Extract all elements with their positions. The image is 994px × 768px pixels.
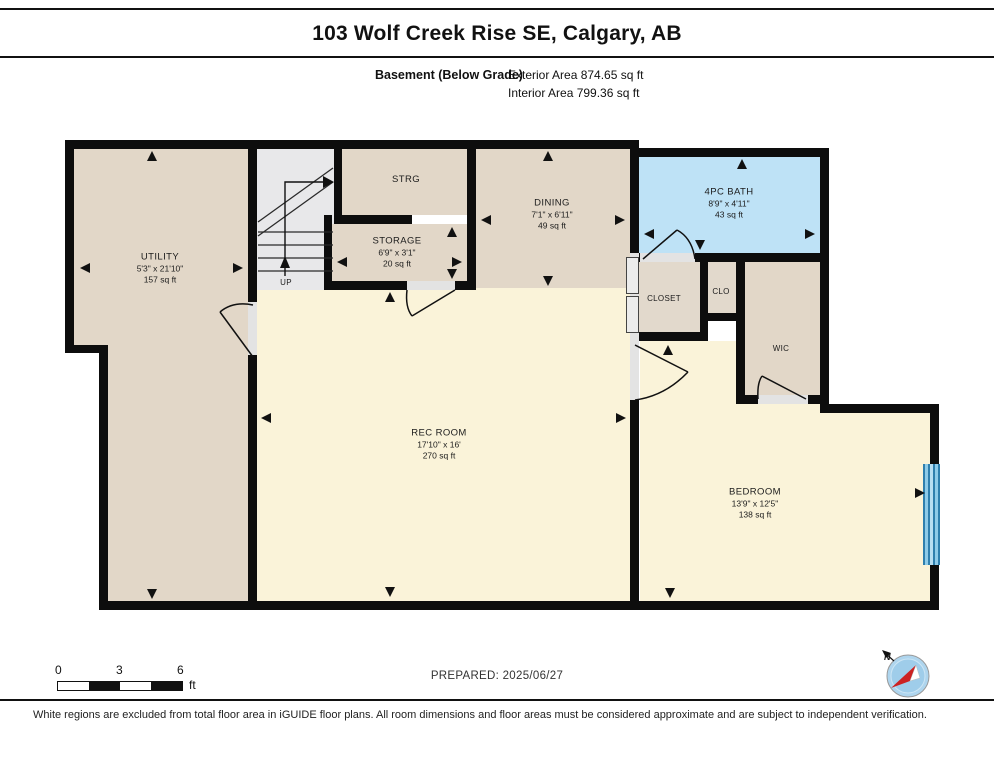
closet-slide-panel bbox=[626, 296, 639, 333]
room-area: 20 sq ft bbox=[372, 258, 421, 269]
door-opening-storage bbox=[407, 281, 455, 290]
page-title: 103 Wolf Creek Rise SE, Calgary, AB bbox=[0, 22, 994, 46]
room-label-clo: CLO bbox=[712, 287, 729, 297]
room-dims: 8'9" x 4'11" bbox=[705, 198, 754, 209]
header-divider-line bbox=[0, 56, 994, 58]
room-name: 4PC BATH bbox=[705, 186, 754, 198]
wall-storage-top bbox=[334, 215, 412, 224]
room-label-storage: STORAGE 6'9" x 3'1" 20 sq ft bbox=[372, 235, 421, 268]
room-label-strg: STRG bbox=[392, 174, 420, 186]
room-bedroom-passage bbox=[640, 341, 737, 601]
stairs-area bbox=[257, 149, 334, 290]
wall-closet-clo bbox=[700, 253, 708, 341]
top-border-line bbox=[0, 8, 994, 10]
door-opening-utility bbox=[248, 302, 257, 355]
room-utility-lower bbox=[108, 345, 248, 601]
room-area: 49 sq ft bbox=[531, 220, 572, 231]
wall-stairs-right bbox=[334, 140, 342, 224]
room-dims: 17'10" x 16' bbox=[411, 439, 466, 450]
room-label-closet: CLOSET bbox=[647, 294, 681, 304]
room-name: STORAGE bbox=[372, 235, 421, 247]
wall-center-lower bbox=[630, 400, 639, 601]
room-label-bedroom: BEDROOM 13'9" x 12'5" 138 sq ft bbox=[729, 486, 781, 519]
door-opening-bath bbox=[640, 253, 695, 262]
prepared-date: PREPARED: 2025/06/27 bbox=[0, 670, 994, 682]
door-opening-wic bbox=[758, 395, 808, 404]
room-area: 157 sq ft bbox=[137, 274, 184, 285]
wall-bedroom-step bbox=[820, 404, 939, 413]
scale-segment bbox=[151, 682, 182, 690]
scale-segment bbox=[89, 682, 120, 690]
wall-dining-left bbox=[467, 140, 476, 290]
up-text: UP bbox=[280, 278, 292, 288]
room-area: 270 sq ft bbox=[411, 450, 466, 461]
room-wic bbox=[745, 262, 820, 395]
room-label-rec-room: REC ROOM 17'10" x 16' 270 sq ft bbox=[411, 427, 466, 460]
room-label-bath: 4PC BATH 8'9" x 4'11" 43 sq ft bbox=[705, 186, 754, 219]
footer-divider-line bbox=[0, 699, 994, 701]
room-name: STRG bbox=[392, 174, 420, 186]
room-name: UTILITY bbox=[137, 251, 184, 263]
interior-area-text: Interior Area 799.36 sq ft bbox=[508, 86, 639, 100]
room-dims: 13'9" x 12'5" bbox=[729, 498, 781, 509]
room-dims: 6'9" x 3'1" bbox=[372, 247, 421, 258]
room-name: DINING bbox=[531, 197, 572, 209]
wall-closet-bottom bbox=[630, 332, 708, 341]
wall-utility-right bbox=[248, 140, 257, 610]
scale-segment bbox=[120, 682, 151, 690]
stairs-up-label: UP bbox=[280, 278, 292, 288]
room-label-dining: DINING 7'1" x 6'11" 49 sq ft bbox=[531, 197, 572, 230]
scale-bar bbox=[57, 681, 183, 691]
room-area: 43 sq ft bbox=[705, 209, 754, 220]
room-name: BEDROOM bbox=[729, 486, 781, 498]
wall-center-upper bbox=[630, 140, 639, 253]
door-opening-bedroom bbox=[630, 343, 639, 400]
room-name: CLOSET bbox=[647, 294, 681, 304]
room-utility bbox=[74, 149, 248, 345]
room-area: 138 sq ft bbox=[729, 509, 781, 520]
wall-bottom bbox=[99, 601, 939, 610]
wall-top bbox=[65, 140, 639, 149]
wall-left-lower bbox=[99, 345, 108, 610]
scale-segment bbox=[58, 682, 89, 690]
wall-bath-top bbox=[630, 148, 829, 157]
room-dims: 5'3" x 21'10" bbox=[137, 263, 184, 274]
exterior-area-text: Exterior Area 874.65 sq ft bbox=[508, 68, 643, 82]
wall-bath-right bbox=[820, 148, 829, 413]
disclaimer-text: White regions are excluded from total fl… bbox=[33, 709, 973, 721]
room-dims: 7'1" x 6'11" bbox=[531, 209, 572, 220]
wall-clo-wic bbox=[736, 253, 745, 404]
room-label-utility: UTILITY 5'3" x 21'10" 157 sq ft bbox=[137, 251, 184, 284]
wall-left-upper bbox=[65, 140, 74, 353]
bedroom-window bbox=[923, 464, 940, 565]
floor-label: Basement (Below Grade) bbox=[375, 68, 523, 82]
floor-plan-page: 103 Wolf Creek Rise SE, Calgary, AB Base… bbox=[0, 0, 994, 768]
compass-north-label: N bbox=[884, 652, 891, 662]
wall-storage-left bbox=[324, 215, 332, 290]
room-name: WIC bbox=[773, 344, 789, 354]
room-name: REC ROOM bbox=[411, 427, 466, 439]
room-label-wic: WIC bbox=[773, 344, 789, 354]
closet-slide-panel bbox=[626, 257, 639, 294]
room-name: CLO bbox=[712, 287, 729, 297]
